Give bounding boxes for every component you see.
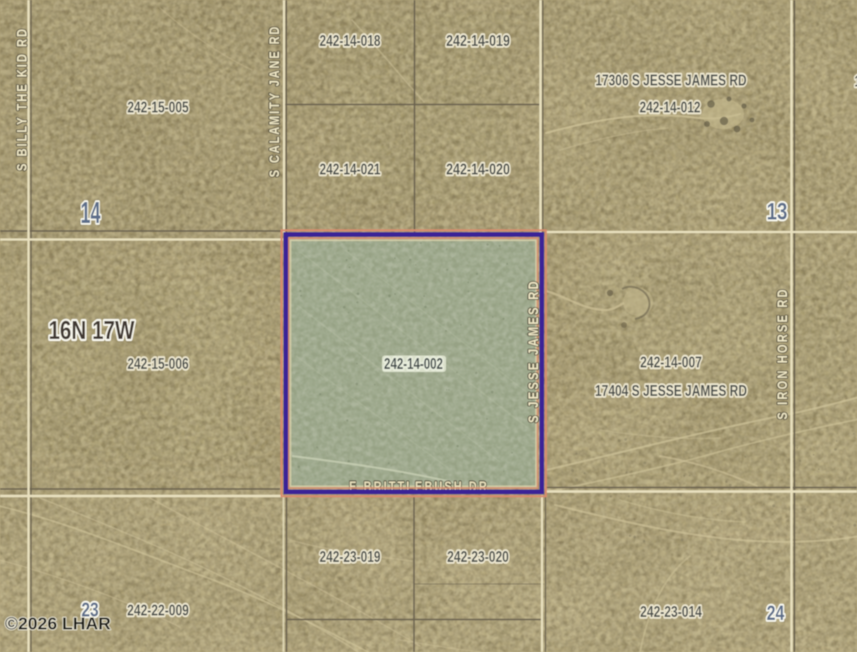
svg-text:17404 S JESSE JAMES RD: 17404 S JESSE JAMES RD bbox=[595, 381, 747, 399]
svg-text:242-14-018: 242-14-018 bbox=[320, 31, 381, 49]
svg-text:242-15-005: 242-15-005 bbox=[127, 98, 188, 116]
svg-text:17306 S JESSE JAMES RD: 17306 S JESSE JAMES RD bbox=[595, 71, 746, 89]
svg-text:14: 14 bbox=[80, 196, 100, 230]
svg-text:242-14-020: 242-14-020 bbox=[446, 161, 510, 179]
svg-text:242-14-021: 242-14-021 bbox=[320, 160, 381, 178]
svg-text:242-15-006: 242-15-006 bbox=[127, 354, 188, 372]
svg-text:242-14-002: 242-14-002 bbox=[384, 354, 443, 372]
svg-text:242-23-020: 242-23-020 bbox=[447, 548, 509, 566]
svg-text:13: 13 bbox=[767, 198, 788, 225]
svg-text:©2026 LHAR: ©2026 LHAR bbox=[5, 614, 111, 634]
svg-text:242-14-012: 242-14-012 bbox=[640, 98, 701, 116]
svg-text:242-22-009: 242-22-009 bbox=[127, 602, 189, 620]
svg-text:242-23-019: 242-23-019 bbox=[320, 547, 381, 565]
svg-text:242-14-007: 242-14-007 bbox=[640, 354, 702, 372]
svg-text:242-14-019: 242-14-019 bbox=[446, 33, 510, 51]
svg-text:16N 17W: 16N 17W bbox=[48, 316, 135, 345]
svg-text:242-23-014: 242-23-014 bbox=[640, 603, 702, 621]
svg-text:S CALAMITY JANE RD: S CALAMITY JANE RD bbox=[267, 25, 283, 178]
svg-text:24: 24 bbox=[767, 601, 785, 625]
svg-text:S IRON HORSE RD: S IRON HORSE RD bbox=[774, 287, 791, 419]
svg-text:S BILLY THE KID RD: S BILLY THE KID RD bbox=[13, 27, 30, 171]
svg-text:S JESSE JAMES RD: S JESSE JAMES RD bbox=[525, 279, 542, 423]
